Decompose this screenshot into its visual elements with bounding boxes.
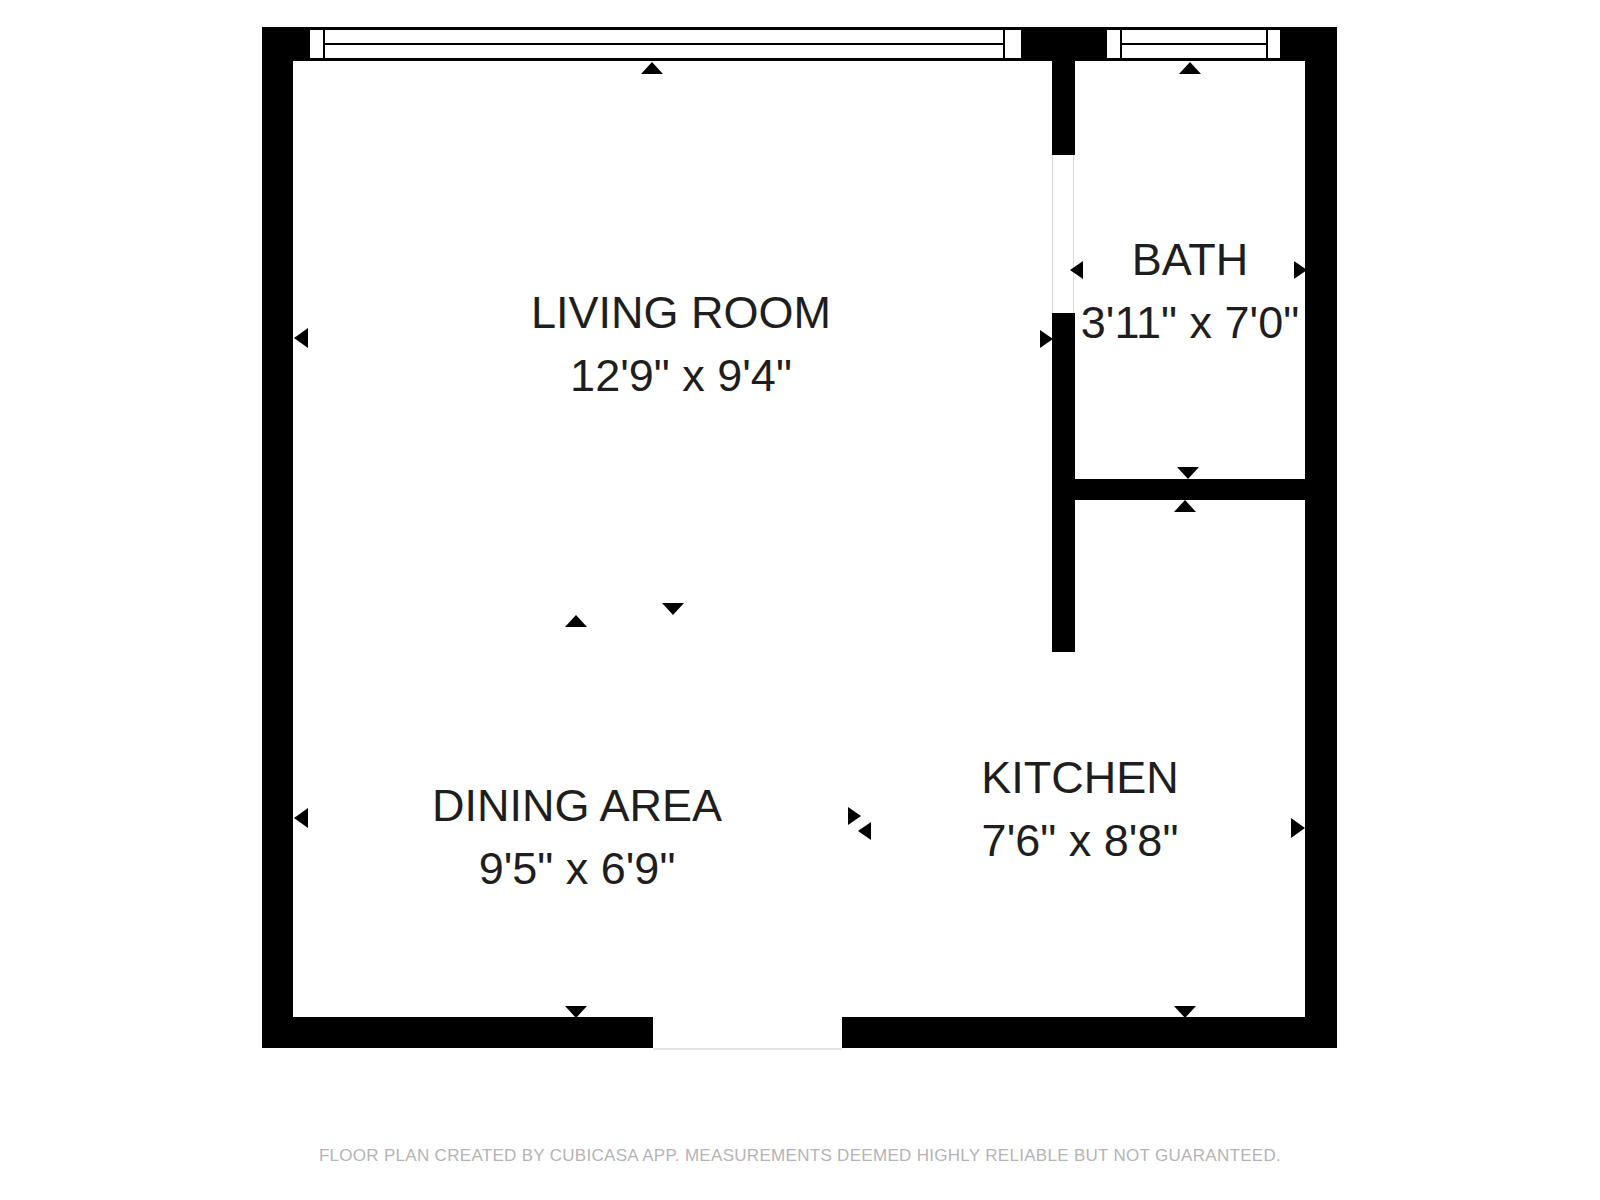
bath-kitchen-wall-marker-top-icon <box>1177 467 1199 479</box>
bath-name: BATH <box>1081 228 1299 291</box>
right-wall-marker-kitchen-icon <box>1291 818 1305 838</box>
dining-area-dimensions: 9'5" x 6'9" <box>432 837 722 900</box>
wall-bath-left-upper <box>1052 61 1075 155</box>
bath-door-opening-edge-left <box>1052 155 1053 313</box>
wall-bath-bottom <box>1052 479 1305 500</box>
bottom-wall-marker-kitchen-icon <box>1174 1006 1196 1018</box>
wall-bottom-right <box>842 1017 1337 1048</box>
bottom-wall-marker-dining-icon <box>565 1006 587 1018</box>
kitchen-name: KITCHEN <box>981 746 1179 809</box>
wall-bottom-left <box>262 1017 653 1048</box>
floor-plan: LIVING ROOM 12'9" x 9'4" BATH 3'11" x 7'… <box>0 0 1600 1200</box>
left-wall-marker-living-icon <box>294 328 308 348</box>
living-dining-boundary-marker-down-icon <box>662 603 684 615</box>
bath-door-marker-outer-icon <box>1040 330 1053 348</box>
bath-door-opening-edge-right <box>1073 155 1074 313</box>
window-marker-living-icon <box>641 62 663 74</box>
window-marker-bath-icon <box>1179 62 1201 74</box>
wall-left <box>262 27 293 1048</box>
dining-area-label: DINING AREA 9'5" x 6'9" <box>432 774 722 900</box>
bath-window-icon <box>1107 27 1280 61</box>
footer-disclaimer: FLOOR PLAN CREATED BY CUBICASA APP. MEAS… <box>0 1146 1600 1166</box>
living-room-label: LIVING ROOM 12'9" x 9'4" <box>531 281 831 407</box>
living-dining-boundary-marker-up-icon <box>565 615 587 627</box>
living-room-dimensions: 12'9" x 9'4" <box>531 344 831 407</box>
living-room-window-icon <box>310 27 1021 61</box>
living-room-name: LIVING ROOM <box>531 281 831 344</box>
entrance-opening-threshold <box>653 1048 842 1050</box>
wall-right <box>1305 27 1337 1048</box>
bath-dimensions: 3'11" x 7'0" <box>1081 291 1299 354</box>
bath-kitchen-wall-marker-bottom-icon <box>1174 500 1196 512</box>
kitchen-dimensions: 7'6" x 8'8" <box>981 809 1179 872</box>
bath-label: BATH 3'11" x 7'0" <box>1081 228 1299 354</box>
dining-kitchen-boundary-marker-left-icon <box>858 822 871 840</box>
dining-area-name: DINING AREA <box>432 774 722 837</box>
kitchen-label: KITCHEN 7'6" x 8'8" <box>981 746 1179 872</box>
left-wall-marker-dining-icon <box>294 808 308 828</box>
